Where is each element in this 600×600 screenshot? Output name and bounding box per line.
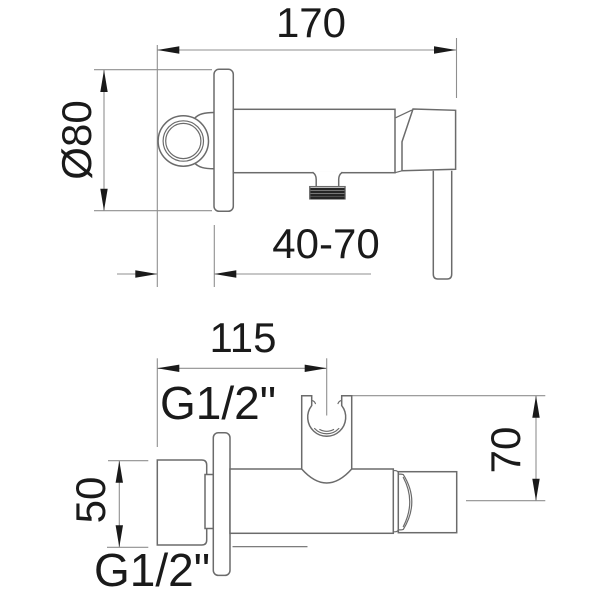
cone-top-edge: [396, 110, 412, 117]
dim-label-holder-distance: 115: [210, 314, 277, 361]
dim-label-plate-diameter: Ø80: [53, 100, 100, 179]
outlet-neck-mask: [314, 172, 342, 186]
arrowhead-left: [157, 365, 179, 372]
dim-label-install-depth-range: 40-70: [272, 220, 379, 267]
side-view: 170 Ø80 40-70: [53, 0, 457, 287]
inlet-boss-top-edge: [194, 113, 214, 119]
wall-plate: [214, 69, 233, 211]
dim-label-total-depth: 170: [276, 0, 346, 46]
inlet-neck: [205, 475, 214, 529]
arrowhead-right-outside: [135, 270, 157, 277]
arrowhead-up: [532, 396, 539, 418]
plan-view: 115 G1/2" 70 50 G1/2": [67, 314, 545, 596]
arrowhead-down: [532, 479, 539, 501]
holder-cup-rim-arc-inner: [320, 430, 334, 432]
arrowhead-up-small: [116, 461, 123, 483]
arrowhead-left-outside: [214, 270, 236, 277]
inlet-union-block: [157, 460, 206, 545]
technical-drawing: 170 Ø80 40-70: [0, 0, 600, 600]
wall-plate: [213, 433, 230, 576]
dim-label-inlet-height: 50: [67, 477, 114, 524]
arrowhead-up: [100, 70, 107, 92]
valve-body: [233, 109, 395, 172]
arrowhead-down: [100, 189, 107, 211]
handle-hub: [402, 109, 456, 171]
dim-label-outlet-thread: G1/2": [160, 377, 276, 429]
handle-lever: [433, 171, 451, 279]
arrowhead-right: [305, 365, 327, 372]
dim-label-inlet-thread: G1/2": [94, 544, 210, 596]
cone-bottom-edge: [395, 171, 402, 173]
arrowhead-left: [157, 46, 179, 53]
dim-label-holder-height: 70: [482, 427, 529, 474]
arrowhead-right: [434, 46, 456, 53]
inlet-boss-bottom-edge: [194, 163, 214, 169]
